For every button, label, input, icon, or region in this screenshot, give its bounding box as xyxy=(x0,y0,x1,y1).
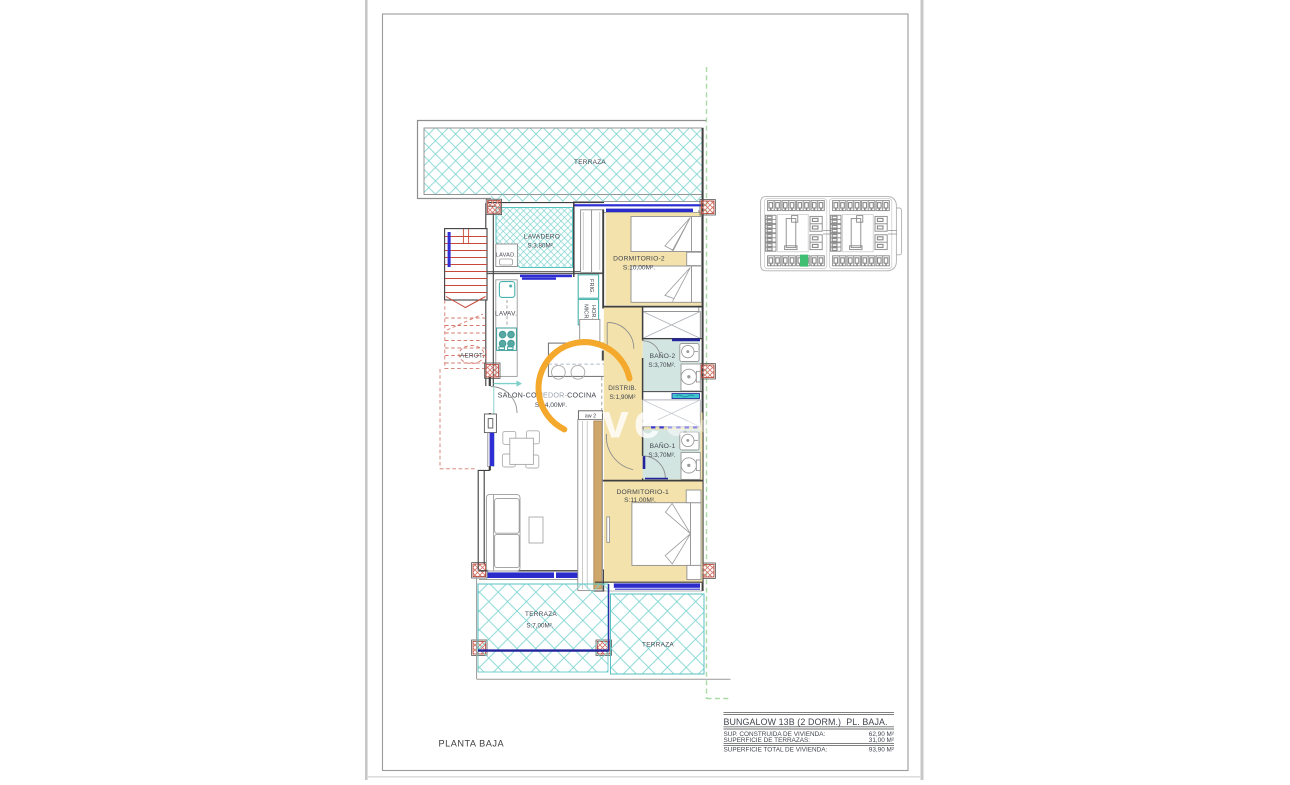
svg-text:aw 2: aw 2 xyxy=(585,413,596,419)
svg-text:BAÑO-2: BAÑO-2 xyxy=(650,351,676,360)
svg-text:PLANTA BAJA: PLANTA BAJA xyxy=(439,739,505,749)
svg-text:DORMITORIO-1: DORMITORIO-1 xyxy=(616,489,669,496)
svg-text:S:3,80M².: S:3,80M². xyxy=(527,243,555,250)
svg-text:SUPERFICIE DE TERRAZAS:: SUPERFICIE DE TERRAZAS: xyxy=(724,737,811,744)
svg-text:ve: ve xyxy=(602,396,665,449)
svg-text:SUPERFICIE TOTAL DE VIVIENDA:: SUPERFICIE TOTAL DE VIVIENDA: xyxy=(724,747,828,754)
svg-text:LAVADERO: LAVADERO xyxy=(524,234,560,241)
svg-text:HOR.: HOR. xyxy=(590,305,596,319)
svg-text:S:3,70M².: S:3,70M². xyxy=(648,452,676,459)
svg-text:FRIG.: FRIG. xyxy=(588,279,594,294)
svg-text:DISTRIB.: DISTRIB. xyxy=(608,385,637,392)
svg-text:AEROT.: AEROT. xyxy=(460,353,484,360)
svg-text:LAVAD.: LAVAD. xyxy=(496,253,517,259)
svg-text:31,00 M²: 31,00 M² xyxy=(869,737,894,744)
svg-text:TERRAZA: TERRAZA xyxy=(525,611,557,618)
svg-text:LAVAV.: LAVAV. xyxy=(495,311,517,318)
svg-text:S:3,70M².: S:3,70M². xyxy=(648,362,676,369)
svg-text:TERRAZA: TERRAZA xyxy=(642,642,674,649)
svg-text:BUNGALOW 13B (2 DORM.) PL. BA: BUNGALOW 13B (2 DORM.) PL. BAJA. xyxy=(724,717,888,727)
svg-text:93,90 M²: 93,90 M² xyxy=(869,747,894,754)
svg-text:S:7,00M².: S:7,00M². xyxy=(526,623,554,630)
svg-text:TERRAZA: TERRAZA xyxy=(574,159,606,166)
svg-text:SALON-COMEDOR-COCINA: SALON-COMEDOR-COCINA xyxy=(498,391,597,400)
svg-text:DORMITORIO-2: DORMITORIO-2 xyxy=(613,256,665,263)
svg-text:MICR.: MICR. xyxy=(583,304,589,320)
svg-text:S:10,00M².: S:10,00M². xyxy=(623,265,655,272)
